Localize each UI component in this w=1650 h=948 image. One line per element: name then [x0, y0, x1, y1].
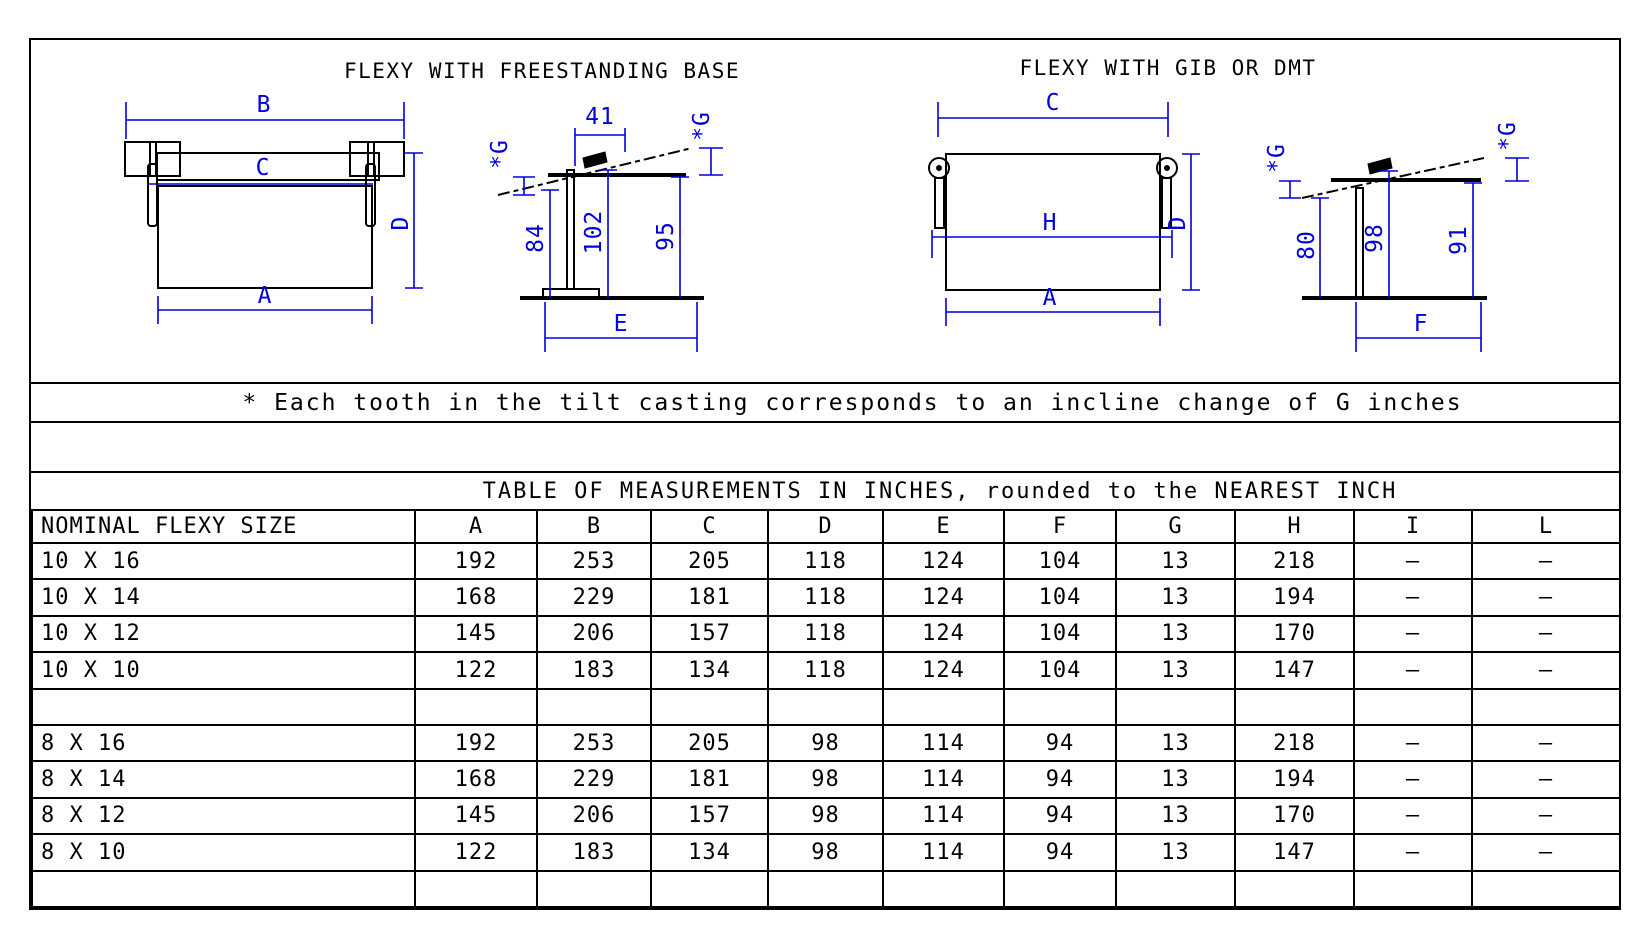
right-drawing-title: FLEXY WITH GIB OR DMT — [1019, 56, 1316, 80]
cell-value: – — [1472, 543, 1620, 579]
cell-value: – — [1354, 834, 1472, 870]
cell-value: 13 — [1116, 725, 1235, 761]
dim-label-95: 95 — [653, 221, 679, 251]
table-title: TABLE OF MEASUREMENTS IN INCHES, rounded… — [31, 471, 1619, 509]
table-row: 8 X 10122183134981149413147–– — [32, 834, 1620, 870]
cell-value: 94 — [1004, 725, 1116, 761]
cell-value: 98 — [768, 798, 883, 834]
cell-value: – — [1354, 798, 1472, 834]
cell-value — [883, 871, 1004, 907]
cell-value: 134 — [651, 652, 768, 688]
left-front-view: B C D — [125, 92, 423, 324]
cell-value — [1116, 689, 1235, 725]
cell-value: – — [1472, 652, 1620, 688]
col-header-G: G — [1116, 510, 1235, 543]
cell-value: 114 — [883, 725, 1004, 761]
right-drawing: FLEXY WITH GIB OR DMT C — [929, 56, 1529, 352]
cell-size — [32, 689, 415, 725]
cell-value — [768, 871, 883, 907]
cell-value: 183 — [537, 834, 651, 870]
cell-value: 194 — [1235, 761, 1354, 797]
cell-value: 104 — [1004, 616, 1116, 652]
cell-value: – — [1354, 761, 1472, 797]
cell-value: – — [1472, 761, 1620, 797]
cell-value — [768, 689, 883, 725]
cell-value: 124 — [883, 652, 1004, 688]
cell-size: 10 X 14 — [32, 579, 415, 615]
cell-value — [1116, 871, 1235, 907]
cell-value: 98 — [768, 725, 883, 761]
cell-value: 181 — [651, 761, 768, 797]
cell-size — [32, 871, 415, 907]
col-header-A: A — [415, 510, 537, 543]
cell-value: 181 — [651, 579, 768, 615]
tilt-note: * Each tooth in the tilt casting corresp… — [31, 382, 1619, 423]
table-row: 10 X 1012218313411812410413147–– — [32, 652, 1620, 688]
cell-value: 122 — [415, 834, 537, 870]
cell-value — [1235, 871, 1354, 907]
cell-value: 157 — [651, 616, 768, 652]
right-front-view: C H D — [929, 90, 1200, 326]
cell-size: 10 X 12 — [32, 616, 415, 652]
cell-value: 192 — [415, 543, 537, 579]
cell-value: 13 — [1116, 652, 1235, 688]
table-row: 8 X 12145206157981149413170–– — [32, 798, 1620, 834]
cell-value: 13 — [1116, 543, 1235, 579]
drawings-area: FLEXY WITH FREESTANDING BASE B C — [31, 40, 1619, 382]
dim-label-F: F — [1414, 311, 1429, 337]
col-header-D: D — [768, 510, 883, 543]
cell-value: 118 — [768, 543, 883, 579]
cell-value: 194 — [1235, 579, 1354, 615]
col-header-F: F — [1004, 510, 1116, 543]
cell-size: 8 X 16 — [32, 725, 415, 761]
right-mount-block — [350, 142, 404, 176]
cell-value: 229 — [537, 579, 651, 615]
col-header-E: E — [883, 510, 1004, 543]
pole — [567, 170, 574, 289]
cad-drawings: FLEXY WITH FREESTANDING BASE B C — [31, 40, 1619, 382]
cell-value — [651, 871, 768, 907]
cell-value: 145 — [415, 616, 537, 652]
cell-value: 118 — [768, 616, 883, 652]
cell-value: – — [1354, 616, 1472, 652]
cell-value: 253 — [537, 543, 651, 579]
cell-value: 118 — [768, 579, 883, 615]
left-drawing-title: FLEXY WITH FREESTANDING BASE — [344, 59, 740, 83]
cell-value: 13 — [1116, 579, 1235, 615]
cell-value — [1472, 689, 1620, 725]
dim-label-G-left: *G — [487, 139, 513, 169]
left-side-view: 41 *G *G 84 102 95 — [487, 104, 723, 352]
cell-value: 13 — [1116, 761, 1235, 797]
col-header-H: H — [1235, 510, 1354, 543]
dim-label-G-right: *G — [1495, 121, 1521, 151]
cell-value — [1354, 871, 1472, 907]
dim-label-80: 80 — [1294, 230, 1320, 260]
cell-value: – — [1472, 616, 1620, 652]
right-side-view: *G *G 80 98 91 F — [1264, 121, 1529, 352]
cell-value — [1004, 871, 1116, 907]
dim-label-98: 98 — [1362, 223, 1388, 253]
cell-value: 218 — [1235, 543, 1354, 579]
cell-value: 104 — [1004, 652, 1116, 688]
cell-value: – — [1472, 725, 1620, 761]
cell-value: 168 — [415, 761, 537, 797]
table-row: 10 X 1619225320511812410413218–– — [32, 543, 1620, 579]
cell-value: 124 — [883, 616, 1004, 652]
cell-value — [537, 871, 651, 907]
cell-value: – — [1354, 543, 1472, 579]
cell-value: 205 — [651, 543, 768, 579]
dim-label-H: H — [1043, 210, 1058, 236]
table-row: 8 X 14168229181981149413194–– — [32, 761, 1620, 797]
dim-label-C: C — [1046, 90, 1061, 116]
cell-value: 168 — [415, 579, 537, 615]
cell-value: 114 — [883, 761, 1004, 797]
cell-value: 253 — [537, 725, 651, 761]
cell-value: 229 — [537, 761, 651, 797]
table-row — [32, 871, 1620, 907]
cell-value: 124 — [883, 579, 1004, 615]
cell-value: – — [1354, 652, 1472, 688]
cell-value: 134 — [651, 834, 768, 870]
cell-value: 104 — [1004, 579, 1116, 615]
cell-value — [1472, 871, 1620, 907]
cell-value — [415, 689, 537, 725]
dim-label-E: E — [614, 311, 629, 337]
cell-value — [1235, 689, 1354, 725]
cell-value: 206 — [537, 798, 651, 834]
cell-value: 170 — [1235, 616, 1354, 652]
cell-value — [883, 689, 1004, 725]
cell-value: 122 — [415, 652, 537, 688]
cell-value: – — [1354, 579, 1472, 615]
cell-value: – — [1472, 834, 1620, 870]
table-row: 10 X 1416822918111812410413194–– — [32, 579, 1620, 615]
dim-label-C-rail: C — [256, 155, 271, 181]
cell-value — [537, 689, 651, 725]
cell-value: 145 — [415, 798, 537, 834]
left-mount-block — [125, 142, 180, 176]
cell-size: 8 X 10 — [32, 834, 415, 870]
hanger-bracket-left — [935, 178, 944, 228]
cell-value: 157 — [651, 798, 768, 834]
cell-value — [1354, 689, 1472, 725]
cell-value: 205 — [651, 725, 768, 761]
cell-value: 118 — [768, 652, 883, 688]
cell-size: 8 X 12 — [32, 798, 415, 834]
cell-value: 218 — [1235, 725, 1354, 761]
cell-value: 192 — [415, 725, 537, 761]
cell-value: 98 — [768, 834, 883, 870]
cell-value: – — [1354, 725, 1472, 761]
dim-label-G-right: *G — [689, 111, 715, 141]
dim-label-G-left: *G — [1264, 143, 1290, 173]
cell-size: 8 X 14 — [32, 761, 415, 797]
col-header-I: I — [1354, 510, 1472, 543]
cell-value: 13 — [1116, 616, 1235, 652]
dim-label-41: 41 — [585, 104, 615, 130]
cell-value: – — [1472, 798, 1620, 834]
cell-value: 13 — [1116, 834, 1235, 870]
table-row: 8 X 16192253205981149413218–– — [32, 725, 1620, 761]
table-body: 10 X 1619225320511812410413218––10 X 141… — [32, 543, 1620, 907]
left-drawing: FLEXY WITH FREESTANDING BASE B C — [125, 59, 740, 352]
dim-label-A: A — [258, 283, 273, 309]
table-row — [32, 689, 1620, 725]
cell-value — [1004, 689, 1116, 725]
col-header-L: L — [1472, 510, 1620, 543]
col-header-B: B — [537, 510, 651, 543]
cell-value: 147 — [1235, 652, 1354, 688]
cell-value: 98 — [768, 761, 883, 797]
col-header-size: NOMINAL FLEXY SIZE — [32, 510, 415, 543]
cell-value: 183 — [537, 652, 651, 688]
cell-value: 94 — [1004, 834, 1116, 870]
cell-value: 124 — [883, 543, 1004, 579]
cell-value: 114 — [883, 798, 1004, 834]
cell-size: 10 X 16 — [32, 543, 415, 579]
cell-value: 13 — [1116, 798, 1235, 834]
col-header-C: C — [651, 510, 768, 543]
dim-label-D: D — [388, 216, 414, 231]
cell-value: 147 — [1235, 834, 1354, 870]
dim-label-B: B — [257, 92, 272, 118]
dim-label-D: D — [1165, 216, 1191, 231]
cell-value: 104 — [1004, 543, 1116, 579]
dim-label-A: A — [1043, 285, 1058, 311]
cell-size: 10 X 10 — [32, 652, 415, 688]
cell-value: – — [1472, 579, 1620, 615]
tilt-casting — [583, 152, 607, 168]
measurements-table: NOMINAL FLEXY SIZEABCDEFGHIL 10 X 161922… — [31, 509, 1621, 908]
table-header: NOMINAL FLEXY SIZEABCDEFGHIL — [32, 510, 1620, 543]
cell-value: 94 — [1004, 798, 1116, 834]
cell-value: 170 — [1235, 798, 1354, 834]
cell-value — [651, 689, 768, 725]
cell-value — [415, 871, 537, 907]
dim-label-84: 84 — [523, 223, 549, 253]
drawing-sheet: FLEXY WITH FREESTANDING BASE B C — [29, 38, 1621, 910]
cell-value: 206 — [537, 616, 651, 652]
cell-value: 94 — [1004, 761, 1116, 797]
spacer-band — [31, 423, 1619, 471]
cell-value: 114 — [883, 834, 1004, 870]
dim-label-91: 91 — [1446, 225, 1472, 255]
dim-label-102: 102 — [581, 210, 607, 255]
screen-case — [158, 186, 372, 288]
table-row: 10 X 1214520615711812410413170–– — [32, 616, 1620, 652]
